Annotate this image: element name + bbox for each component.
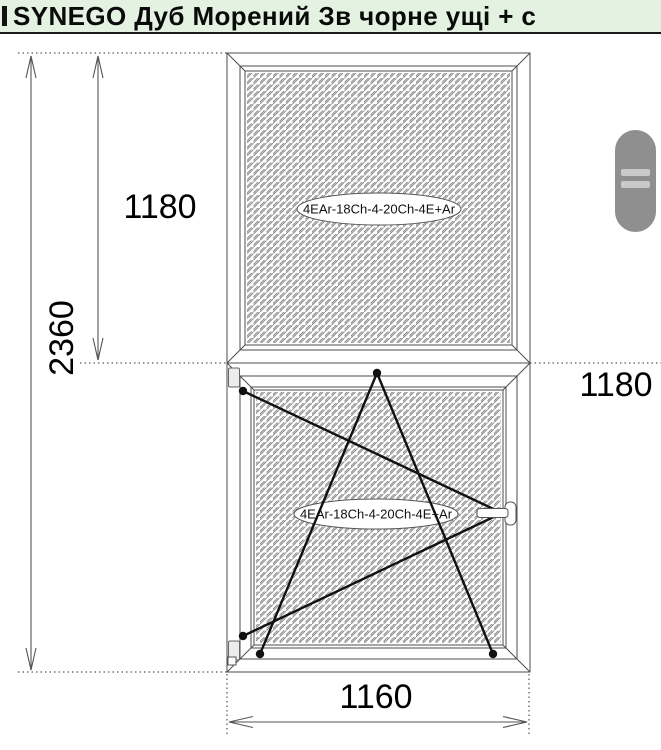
dim-bottom-section-height: 1180: [579, 366, 652, 404]
scroll-handle-grip-icon: [621, 169, 650, 176]
top-glass-label: 4EAr-18Ch-4-20Ch-4E+Ar: [303, 202, 456, 217]
corner-fitting-icon: [228, 657, 236, 665]
dim-total-height: 2360: [43, 300, 81, 376]
bottom-glass-label: 4EAr-18Ch-4-20Ch-4E+Ar: [300, 507, 453, 522]
bottom-tilt-turn-sash: 4EAr-18Ch-4-20Ch-4E+Ar: [227, 363, 530, 672]
window-title: SYNEGO Дуб Морений Зв чорне ущі + с: [13, 1, 536, 32]
dim-width: 1160: [339, 678, 412, 716]
title-bar: SYNEGO Дуб Морений Зв чорне ущі + с: [0, 0, 661, 34]
dim-top-section-height: 1180: [123, 188, 196, 226]
truncated-glyph: [2, 6, 7, 26]
window-drawing[interactable]: 2360 1180 1180 1160 4EAr-18Ch-4-20Ch-4E+…: [0, 34, 661, 750]
top-hinge-icon: [229, 368, 240, 387]
top-fixed-section: 4EAr-18Ch-4-20Ch-4E+Ar: [227, 53, 530, 363]
scroll-handle-grip-icon: [621, 181, 650, 188]
scroll-handle[interactable]: [615, 130, 656, 232]
